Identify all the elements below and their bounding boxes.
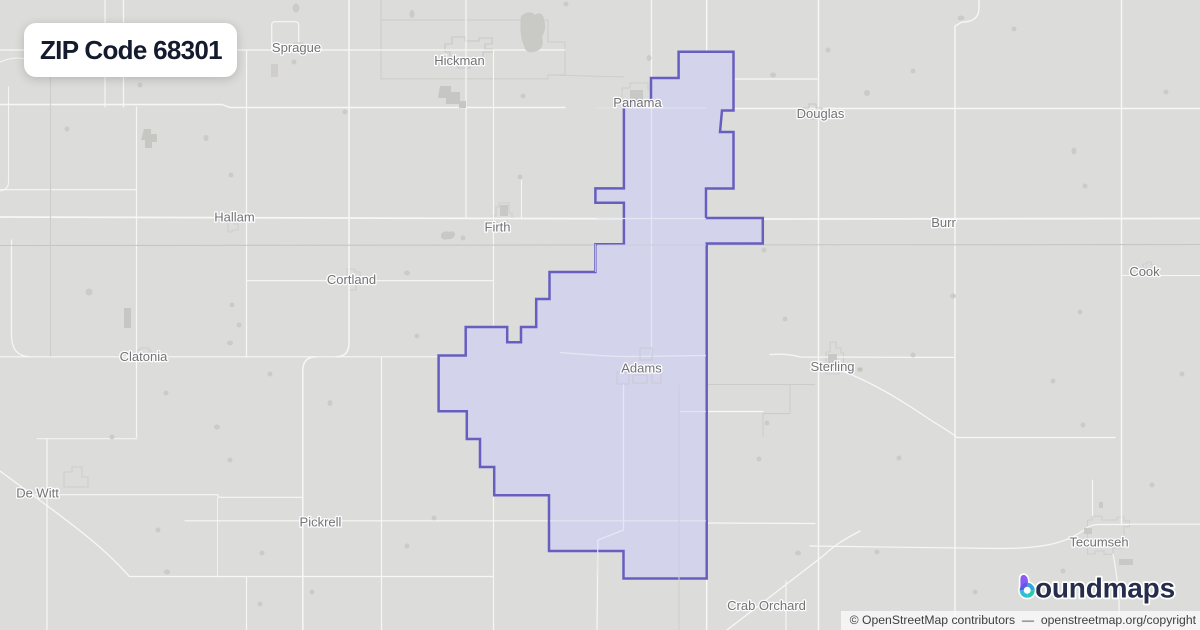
svg-text:De Witt: De Witt <box>16 486 59 501</box>
svg-text:Clatonia: Clatonia <box>120 349 168 364</box>
svg-text:Firth: Firth <box>485 220 511 235</box>
svg-text:Sprague: Sprague <box>272 40 321 55</box>
svg-text:Hallam: Hallam <box>214 210 254 225</box>
svg-text:Adams: Adams <box>621 361 662 376</box>
svg-text:Pickrell: Pickrell <box>300 515 342 530</box>
svg-text:Sterling: Sterling <box>810 359 854 374</box>
svg-text:Cook: Cook <box>1129 264 1160 279</box>
svg-text:Tecumseh: Tecumseh <box>1069 535 1128 550</box>
svg-text:Panama: Panama <box>613 95 662 110</box>
svg-text:Douglas: Douglas <box>797 106 845 121</box>
svg-text:Cortland: Cortland <box>327 272 376 287</box>
svg-text:Hickman: Hickman <box>434 53 485 68</box>
svg-text:Crab Orchard: Crab Orchard <box>727 598 806 613</box>
svg-text:oundmaps: oundmaps <box>1035 573 1175 604</box>
svg-text:Burr: Burr <box>931 215 956 230</box>
